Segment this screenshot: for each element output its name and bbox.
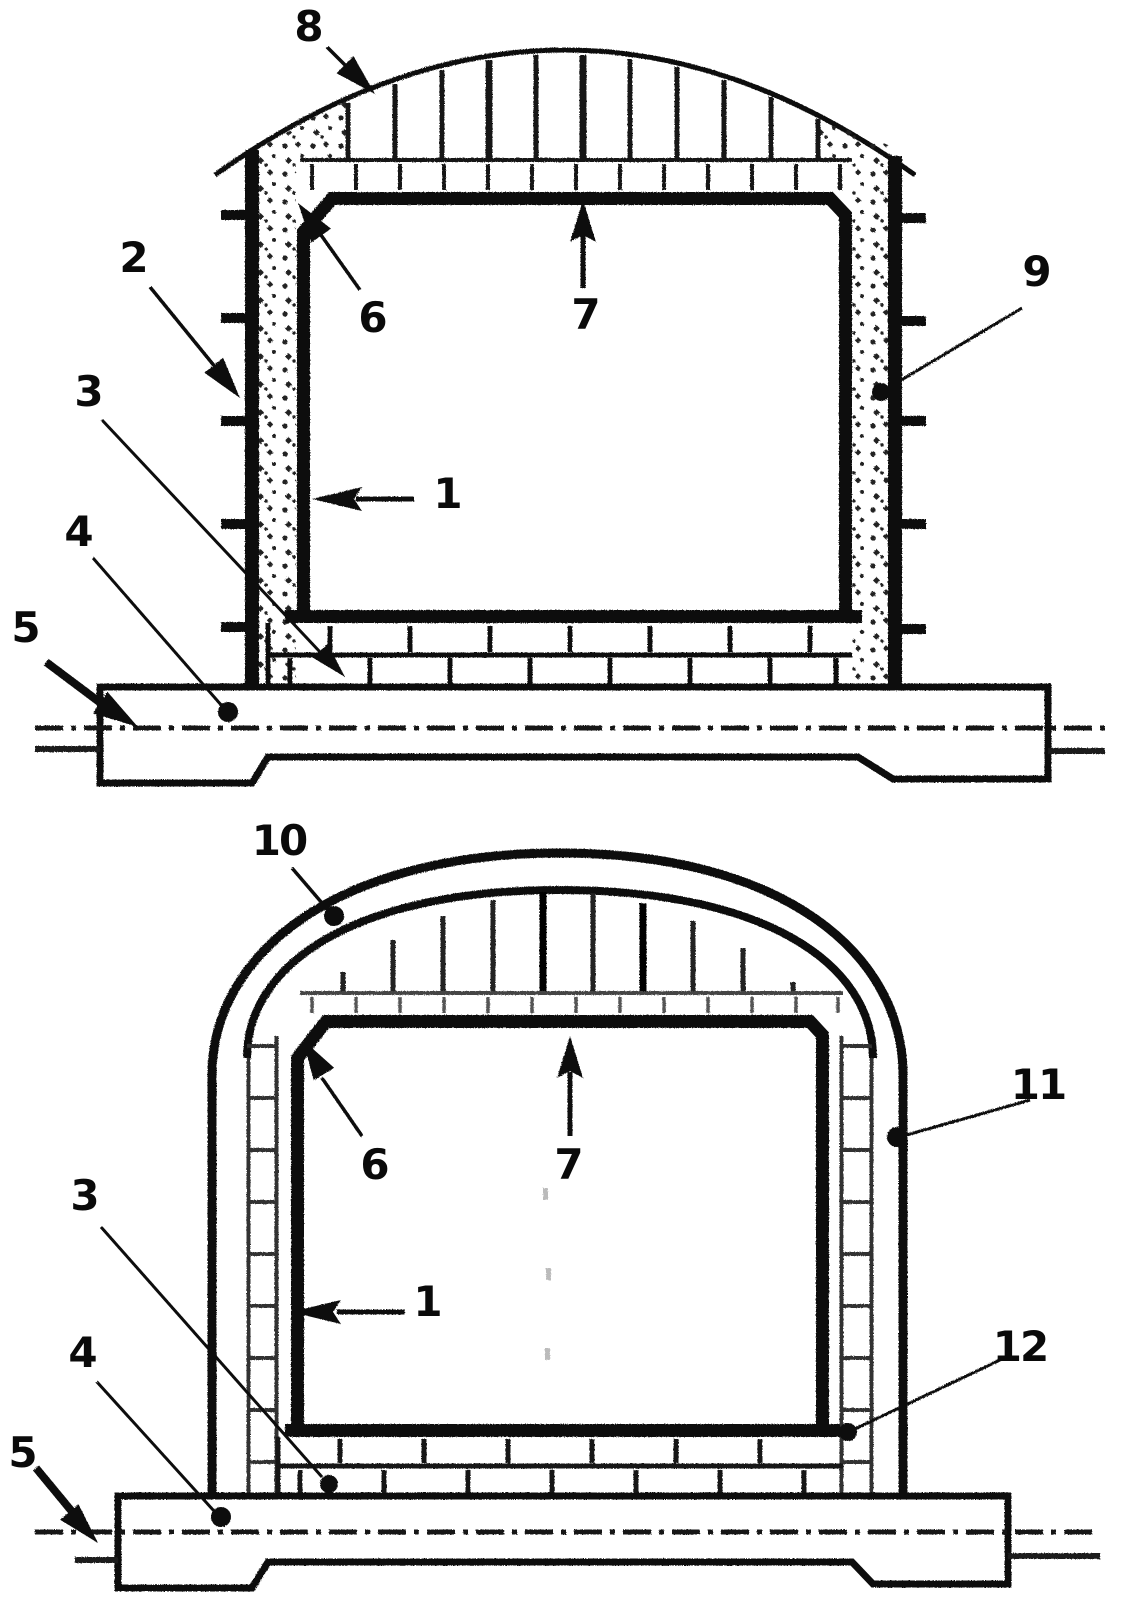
ref-label-2: 2 [119,237,146,279]
chamber-faint-marks [543,1188,551,1360]
hearth-bricks [268,623,852,687]
ref-label-5-top: 5 [11,607,38,649]
patent-drawing-sheet: 8 2 3 4 5 6 7 9 1 10 6 7 11 1 3 4 5 12 [0,0,1129,1598]
hearth-bricks-bottom [277,1437,843,1494]
chamber-lining [285,199,862,621]
brick-lining-left [247,1036,277,1494]
ref-label-11: 11 [1011,1064,1065,1106]
ref-label-7-bottom: 7 [554,1144,581,1186]
leader-arrowheads-bottom [60,906,907,1543]
ref-label-6-top: 6 [358,297,385,339]
wall-anchor-ticks [221,210,926,634]
base-plate-bottom [118,1496,1008,1588]
ref-label-4-bottom: 4 [68,1332,95,1374]
ref-label-9: 9 [1022,251,1049,293]
ref-label-3-bottom: 3 [70,1175,97,1217]
ref-label-7-top: 7 [571,294,598,336]
chamber-lining-bottom [285,1022,840,1431]
base-plate [100,687,1048,783]
leader-lines-bottom [36,868,1030,1514]
ref-label-3-top: 3 [74,371,101,413]
ground-lines [35,749,1105,751]
ref-label-4-top: 4 [64,511,91,553]
ref-label-1-top: 1 [433,473,460,515]
insulation-stipple-walls [259,162,888,687]
ref-label-6-bottom: 6 [360,1144,387,1186]
ref-label-8: 8 [294,6,321,48]
figure-top-section [35,47,1105,783]
ref-label-5-bottom: 5 [8,1432,35,1474]
top-brick-course-bottom [300,993,843,1013]
ref-label-12: 12 [993,1326,1047,1368]
figure-bottom-section [35,853,1100,1588]
wall-outer-lines [245,150,902,687]
ref-label-10: 10 [252,820,306,862]
ref-label-1-bottom: 1 [413,1281,440,1323]
furnace-cross-section-drawing [0,0,1129,1598]
top-brick-course [300,160,852,190]
